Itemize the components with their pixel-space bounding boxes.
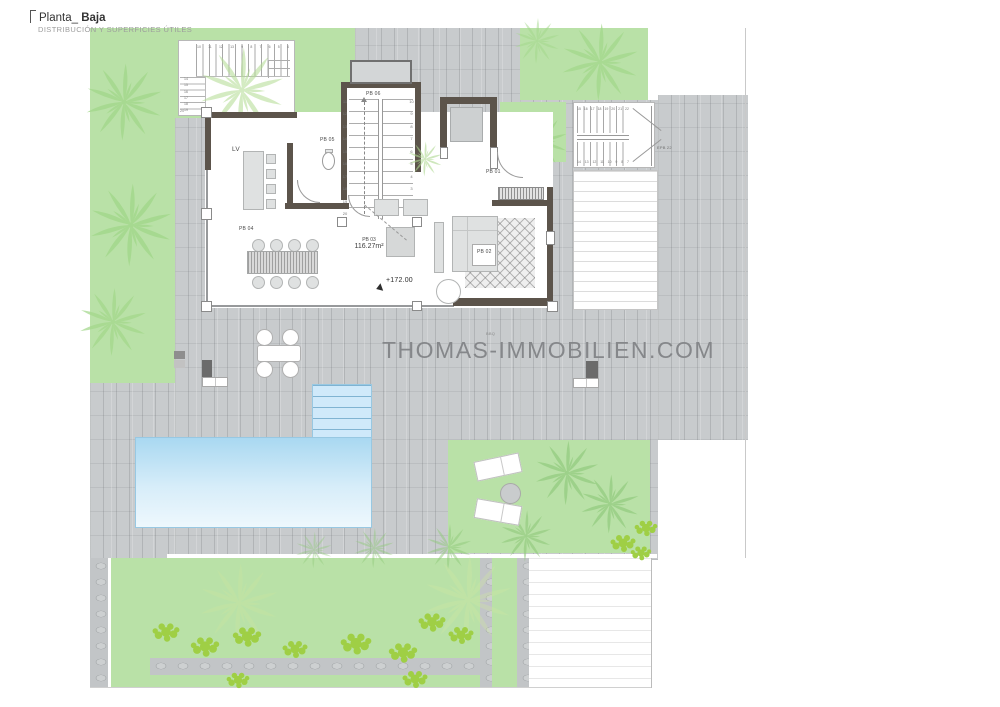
bush-icon <box>418 610 446 634</box>
bush-icon <box>630 544 652 562</box>
palm-tree-icon <box>294 530 334 570</box>
wall-segment <box>205 112 211 170</box>
watermark-text: THOMAS-IMMOBILIEN.COM <box>382 337 715 364</box>
exterior-stairs-top-numbers: 1516171819202122 <box>577 107 629 111</box>
wall-pier <box>201 107 212 118</box>
wall-pier <box>412 301 422 311</box>
room-label-pb03-block: PB 03 116.27m² <box>345 237 393 250</box>
bush-icon <box>340 630 372 657</box>
outdoor-table <box>257 345 301 362</box>
utility-box <box>174 351 185 359</box>
interior-stairs-left-numbers: 11121314151617181920 <box>342 100 348 216</box>
outdoor-chair <box>256 329 273 346</box>
coffee-table <box>472 244 496 266</box>
kitchen-island <box>243 151 264 210</box>
bar-stool <box>266 169 276 179</box>
wall-pier <box>547 301 558 312</box>
bush-icon <box>388 640 418 665</box>
exterior-stairs-edge <box>651 106 652 166</box>
armchair <box>403 199 428 216</box>
dining-chair <box>270 276 283 289</box>
bush-icon <box>226 670 250 690</box>
wall-segment <box>453 298 553 306</box>
wall-pier <box>412 217 422 227</box>
wall-segment <box>287 143 293 203</box>
level-marker: +172.00 <box>386 277 413 284</box>
plot-boundary-right <box>745 28 746 558</box>
dining-table <box>247 251 318 274</box>
glass-wall <box>206 170 208 306</box>
palm-tree-icon <box>558 20 642 104</box>
wall-segment <box>492 200 550 206</box>
exterior-stairs-label: EPB 22 <box>657 145 672 150</box>
bush-icon <box>402 668 428 690</box>
plot-boundary-bottom <box>90 687 651 688</box>
stairs-ascent-line <box>364 102 366 214</box>
title-block: Planta_ Baja DISTRIBUCIÓN Y SUPERFICIES … <box>30 10 192 34</box>
exterior-stairs-landing <box>577 135 629 140</box>
utility-box <box>174 360 185 368</box>
dining-chair <box>288 276 301 289</box>
tv-bench <box>434 222 444 273</box>
entry-stairs-left-numbers: 141516171819 <box>181 78 191 113</box>
room-label-pb01: PB 01 <box>486 169 501 175</box>
toilet-cistern <box>325 149 333 153</box>
wall-segment <box>205 112 297 118</box>
driveway-border <box>651 558 652 688</box>
garden-side-table <box>500 483 521 504</box>
driveway-wall-right <box>517 558 529 688</box>
room-area-pb03: 116.27m² <box>345 243 393 250</box>
bush-icon <box>152 620 180 644</box>
garden-wall-gap <box>108 558 111 688</box>
page-title: Planta_ Baja <box>30 10 192 24</box>
floor-plan-canvas: 10111213987654 141516171819 20 151617181… <box>0 0 1000 707</box>
bbq-counter <box>202 377 228 387</box>
outdoor-chair <box>282 329 299 346</box>
wall-pier <box>201 208 212 220</box>
palm-tree-icon <box>578 472 642 536</box>
garden-stone-path <box>150 658 480 675</box>
bbq-counter <box>573 378 599 388</box>
bar-stool <box>266 154 276 164</box>
outdoor-chair <box>282 361 299 378</box>
pool-steps <box>312 384 372 438</box>
palm-tree-icon <box>82 60 166 144</box>
round-chair <box>436 279 461 304</box>
palm-tree-icon <box>352 526 396 570</box>
entry-stairs-last-number: 20 <box>180 109 184 113</box>
wall-segment <box>285 203 349 209</box>
room-label-pb04: PB 04 <box>239 226 254 232</box>
driveway <box>529 558 651 688</box>
wall-pier <box>201 301 212 312</box>
dining-chair <box>252 276 265 289</box>
bush-icon <box>282 638 308 660</box>
title-main: Baja <box>81 12 105 24</box>
toilet <box>322 152 335 170</box>
room-label-pb05: PB 05 <box>320 137 335 143</box>
bush-icon <box>448 624 474 646</box>
light-well-planter <box>350 60 412 84</box>
fireplace-core <box>450 107 483 142</box>
bush-icon <box>232 624 262 649</box>
fireplace-wall <box>490 97 497 147</box>
palm-tree-icon <box>76 285 150 359</box>
room-label-pb02: PB 02 <box>477 249 492 255</box>
bush-icon <box>634 518 658 538</box>
pool <box>135 437 372 528</box>
garden-left-wall <box>90 558 108 688</box>
exterior-stairs-bottom-numbers: 1413121110987 <box>577 160 629 164</box>
palm-tree-icon <box>86 180 176 270</box>
bar-stool <box>266 199 276 209</box>
room-label-living: LV <box>232 146 240 153</box>
armchair <box>374 199 399 216</box>
palm-tree-icon <box>512 16 562 66</box>
deck <box>573 170 658 310</box>
title-prefix: Planta_ <box>39 12 78 24</box>
stairs-ascent-arrow-icon <box>361 97 367 102</box>
outdoor-chair <box>256 361 273 378</box>
fireplace-wall <box>440 97 497 104</box>
bar-stool <box>266 184 276 194</box>
page-subtitle: DISTRIBUCIÓN Y SUPERFICIES ÚTILES <box>38 25 192 34</box>
wall-pier <box>546 231 555 245</box>
sideboard-wardrobe <box>498 187 544 200</box>
room-label-pb06: PB 06 <box>366 91 381 97</box>
bbq-label: BBQ <box>486 331 495 336</box>
dining-chair <box>306 276 319 289</box>
wall-pier <box>337 217 347 227</box>
bush-icon <box>190 634 220 659</box>
title-bracket-icon <box>30 10 36 23</box>
